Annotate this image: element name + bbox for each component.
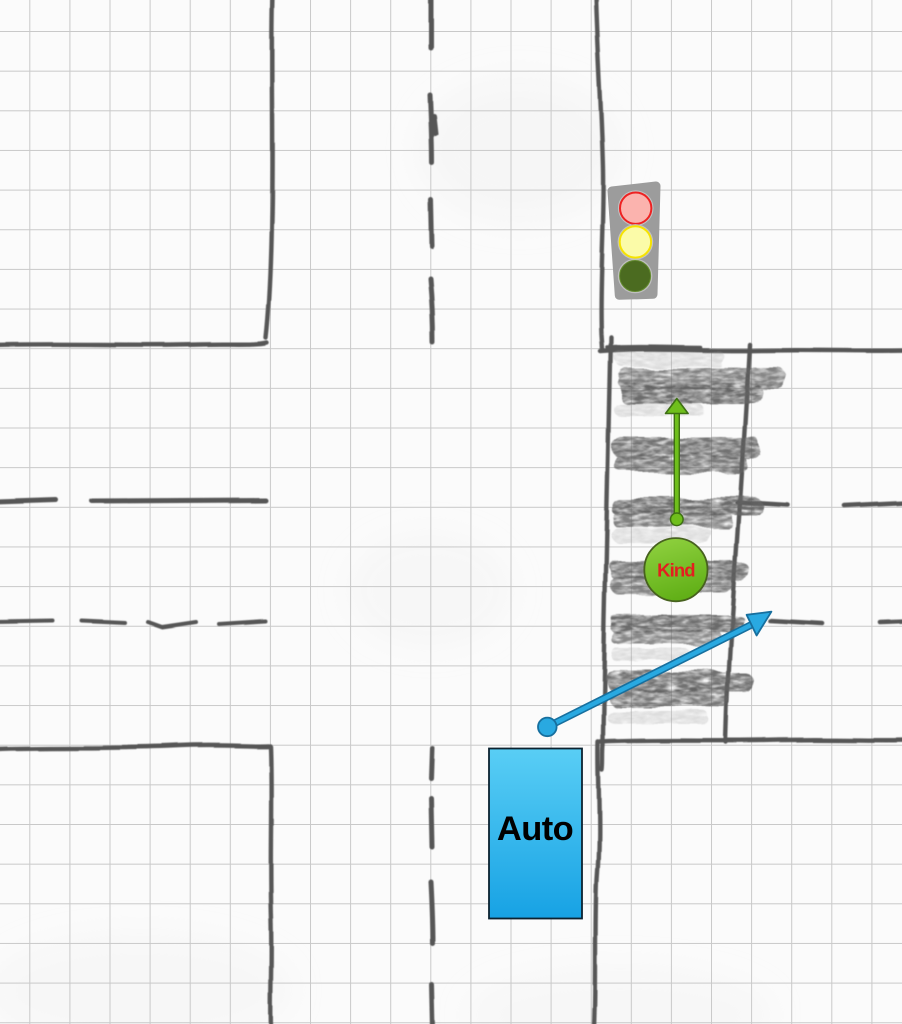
svg-text:Kind: Kind [657,560,695,581]
svg-text:Auto: Auto [497,810,573,848]
